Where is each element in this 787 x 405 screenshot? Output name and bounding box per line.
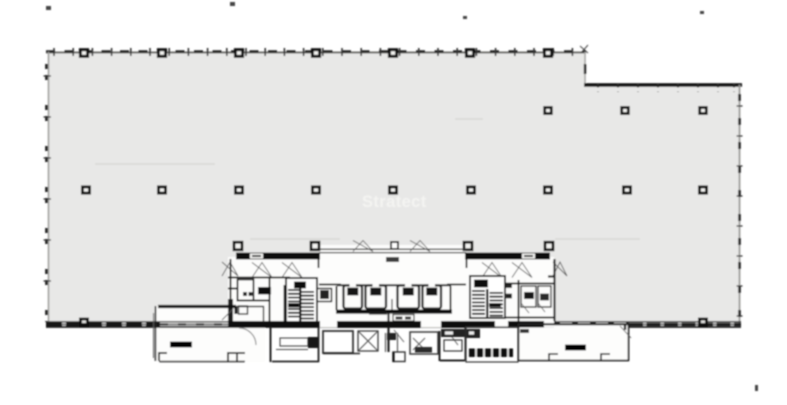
svg-text:Stratect: Stratect <box>362 193 427 211</box>
